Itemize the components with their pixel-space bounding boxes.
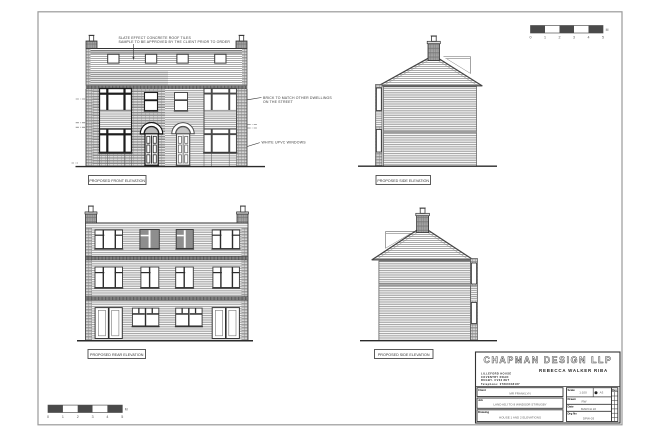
- svg-text:Rev: Rev: [612, 388, 617, 392]
- svg-text:RUGBY. CV23 8ET: RUGBY. CV23 8ET: [481, 378, 510, 382]
- svg-text:2: 2: [559, 36, 561, 40]
- svg-text:5: 5: [602, 36, 604, 40]
- svg-text:DPW-03: DPW-03: [583, 416, 595, 420]
- svg-text:ON THE STREET: ON THE STREET: [263, 100, 294, 104]
- svg-text:Drawn: Drawn: [568, 397, 577, 401]
- svg-text:5: 5: [121, 415, 123, 419]
- svg-text:Drawing: Drawing: [478, 410, 489, 414]
- svg-text:WHITE UPVC WINDOWS: WHITE UPVC WINDOWS: [262, 141, 307, 145]
- svg-text:Job: Job: [478, 398, 483, 402]
- svg-text:0: 0: [47, 415, 49, 419]
- svg-text:Drg No: Drg No: [568, 412, 578, 416]
- svg-text:M: M: [125, 407, 128, 411]
- svg-text:RW: RW: [582, 400, 587, 404]
- svg-text:Date: Date: [568, 405, 575, 409]
- svg-text:4: 4: [588, 36, 590, 40]
- svg-text:1: 1: [544, 36, 546, 40]
- svg-text:CHAPMAN DESIGN LLP: CHAPMAN DESIGN LLP: [484, 355, 613, 365]
- svg-text:MARCH 22: MARCH 22: [581, 407, 597, 411]
- svg-text:M: M: [606, 28, 609, 32]
- svg-text:Client: Client: [478, 388, 486, 392]
- svg-text:REBECCA WALKER RIBA: REBECCA WALKER RIBA: [539, 368, 608, 373]
- svg-text:2: 2: [77, 415, 79, 419]
- svg-text:1:100: 1:100: [579, 391, 587, 395]
- svg-text:Telephone: 07890048187: Telephone: 07890048187: [481, 382, 520, 386]
- svg-text:PROPOSED SIDE ELEVATION: PROPOSED SIDE ELEVATION: [377, 179, 429, 183]
- svg-text:SAMPLE TO BE APPROVED BY THE C: SAMPLE TO BE APPROVED BY THE CLIENT PRIO…: [119, 40, 231, 44]
- svg-text:3: 3: [92, 415, 94, 419]
- svg-text:PROPOSED REAR ELEVATION: PROPOSED REAR ELEVATION: [90, 353, 144, 357]
- svg-text:0: 0: [530, 36, 532, 40]
- svg-text:Scale: Scale: [568, 388, 576, 392]
- svg-text:PROPOSED FRONT ELEVATION: PROPOSED FRONT ELEVATION: [89, 179, 145, 183]
- svg-text:PROPOSED SIDE ELEVATION: PROPOSED SIDE ELEVATION: [378, 353, 430, 357]
- svg-text:MR FRANKLYN: MR FRANKLYN: [509, 391, 530, 395]
- svg-text:HOUSE 1 AND 2 ELEVATIONS: HOUSE 1 AND 2 ELEVATIONS: [499, 415, 541, 419]
- svg-text:LAND ADJ TO 8 WINDSOR ST/RUGBY: LAND ADJ TO 8 WINDSOR ST/RUGBY: [493, 402, 546, 406]
- svg-text:1: 1: [62, 415, 64, 419]
- svg-text:4: 4: [106, 415, 108, 419]
- svg-text:3: 3: [573, 36, 575, 40]
- svg-text:A3: A3: [600, 391, 604, 395]
